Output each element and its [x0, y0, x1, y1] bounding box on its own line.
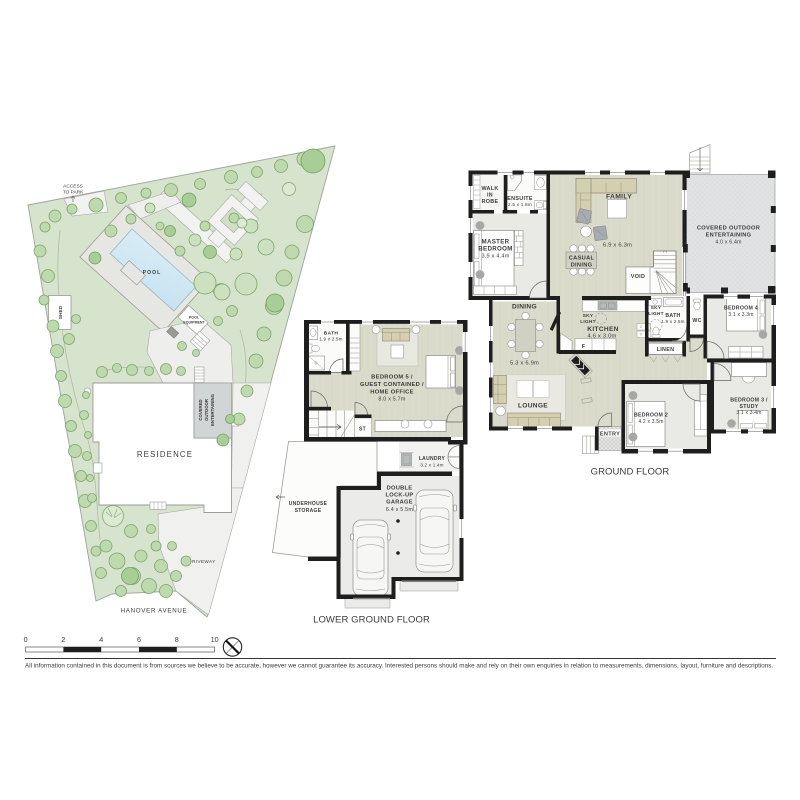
svg-text:GROUND FLOOR: GROUND FLOOR: [591, 467, 670, 478]
svg-text:LOWER GROUND FLOOR: LOWER GROUND FLOOR: [313, 615, 430, 626]
svg-text:DINING: DINING: [571, 263, 593, 269]
svg-text:4.6 x 3.0m: 4.6 x 3.0m: [587, 334, 616, 340]
svg-text:6: 6: [137, 635, 141, 644]
svg-text:DRIVEWAY: DRIVEWAY: [188, 559, 215, 564]
svg-text:BEDROOM 3 /: BEDROOM 3 /: [730, 398, 768, 404]
svg-text:3.1 x 3.4m: 3.1 x 3.4m: [736, 410, 761, 416]
svg-text:3.9 x 4.4m: 3.9 x 4.4m: [481, 254, 509, 260]
svg-text:LOCK-UP: LOCK-UP: [385, 493, 413, 499]
svg-text:POOL: POOL: [143, 270, 162, 276]
svg-text:FAMILY: FAMILY: [606, 194, 632, 201]
svg-text:F: F: [582, 344, 586, 350]
svg-text:3.2 x 1.4m: 3.2 x 1.4m: [420, 463, 443, 468]
svg-text:BEDROOM 4: BEDROOM 4: [724, 306, 758, 312]
svg-text:4.2 x 3.5m: 4.2 x 3.5m: [638, 419, 663, 425]
svg-text:3.1 x 3.3m: 3.1 x 3.3m: [728, 312, 753, 318]
svg-text:DINING: DINING: [512, 304, 537, 311]
svg-text:IN: IN: [487, 193, 493, 199]
svg-text:SHED: SHED: [58, 305, 64, 319]
svg-text:BEDROOM: BEDROOM: [478, 246, 512, 253]
svg-text:10: 10: [211, 635, 219, 644]
svg-text:OUTDOOR: OUTDOOR: [204, 398, 209, 421]
svg-text:COVERED OUTDOOR: COVERED OUTDOOR: [697, 226, 760, 232]
svg-text:KITCHEN: KITCHEN: [587, 326, 618, 333]
svg-text:STORAGE: STORAGE: [295, 508, 322, 514]
svg-text:HOME OFFICE: HOME OFFICE: [370, 390, 414, 396]
svg-text:ACCESS: ACCESS: [63, 184, 83, 190]
svg-text:COVERED: COVERED: [198, 399, 203, 420]
svg-text:LIGHT: LIGHT: [580, 319, 596, 324]
svg-text:DOUBLE: DOUBLE: [387, 486, 413, 492]
svg-text:BEDROOM 2: BEDROOM 2: [634, 413, 668, 419]
svg-text:HANOVER AVENUE: HANOVER AVENUE: [121, 608, 188, 615]
svg-text:RESIDENCE: RESIDENCE: [137, 450, 193, 459]
svg-text:POOL: POOL: [189, 316, 200, 320]
svg-text:LIGHT: LIGHT: [648, 311, 664, 316]
svg-text:5.3 x 6.9m: 5.3 x 6.9m: [510, 361, 539, 367]
svg-text:EQUIPMENT: EQUIPMENT: [183, 321, 205, 325]
svg-text:LINEN: LINEN: [657, 347, 675, 353]
svg-text:6.9 x 6.3m: 6.9 x 6.3m: [603, 243, 632, 249]
svg-text:All information contained in t: All information contained in this docume…: [25, 663, 773, 670]
svg-text:2.5 x 1.8m: 2.5 x 1.8m: [508, 202, 532, 207]
svg-text:LOUNGE: LOUNGE: [518, 403, 548, 410]
svg-text:ROBE: ROBE: [482, 199, 499, 205]
svg-text:1.9 x 2.5m: 1.9 x 2.5m: [319, 337, 342, 342]
svg-text:LAUNDRY: LAUNDRY: [419, 456, 446, 462]
svg-text:ENTERTAINING: ENTERTAINING: [706, 233, 752, 239]
svg-text:8: 8: [175, 635, 179, 644]
svg-text:ENTERTAINING: ENTERTAINING: [210, 393, 215, 426]
svg-text:SKY: SKY: [583, 313, 594, 318]
svg-text:UNDERHOUSE: UNDERHOUSE: [289, 501, 328, 507]
svg-text:4.0 x 6.4m: 4.0 x 6.4m: [715, 240, 741, 246]
svg-text:WALK: WALK: [481, 186, 498, 192]
svg-text:MASTER: MASTER: [482, 239, 510, 246]
svg-text:ST: ST: [359, 427, 366, 433]
svg-text:1.9 x 2.5m: 1.9 x 2.5m: [661, 319, 684, 324]
svg-text:TO PARK: TO PARK: [63, 190, 84, 196]
svg-text:6.4 x 5.5m: 6.4 x 5.5m: [386, 507, 413, 513]
svg-text:2: 2: [61, 635, 65, 644]
svg-text:GUEST CONTAINED /: GUEST CONTAINED /: [360, 382, 424, 388]
svg-text:4: 4: [99, 635, 103, 644]
svg-text:CASUAL: CASUAL: [569, 256, 595, 262]
svg-text:GARAGE: GARAGE: [386, 500, 413, 506]
svg-text:WC: WC: [692, 318, 701, 324]
svg-text:8.0 x 5.7m: 8.0 x 5.7m: [378, 397, 405, 403]
svg-text:BEDROOM 5 /: BEDROOM 5 /: [371, 375, 413, 381]
svg-text:ENTRY: ENTRY: [600, 432, 620, 438]
svg-text:0: 0: [24, 635, 28, 644]
svg-text:VOID: VOID: [631, 274, 645, 280]
